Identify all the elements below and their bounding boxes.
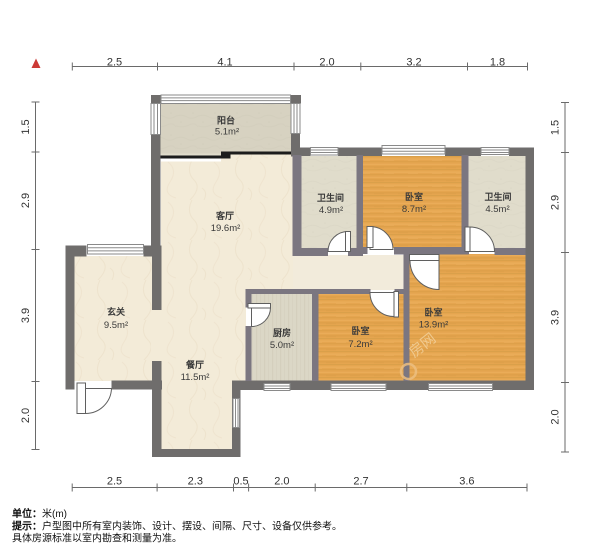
svg-text:卫生间: 卫生间 bbox=[317, 192, 344, 203]
svg-text:3.9: 3.9 bbox=[20, 308, 32, 323]
svg-text:厨房: 厨房 bbox=[273, 327, 291, 338]
svg-text:具体房源标准以室内勘查和测量为准。: 具体房源标准以室内勘查和测量为准。 bbox=[12, 532, 182, 545]
svg-text:卧室: 卧室 bbox=[351, 325, 369, 336]
svg-text:3.9: 3.9 bbox=[550, 310, 562, 325]
svg-text:5.0m²: 5.0m² bbox=[270, 340, 294, 351]
svg-text:4.5m²: 4.5m² bbox=[485, 204, 509, 215]
svg-text:19.6m²: 19.6m² bbox=[211, 223, 241, 234]
svg-text:1.5: 1.5 bbox=[20, 119, 32, 134]
svg-text:提示：户型图中所有室内装饰、设计、摆设、间隔、尺寸、设备仅供: 提示：户型图中所有室内装饰、设计、摆设、间隔、尺寸、设备仅供参考。 bbox=[12, 520, 342, 533]
svg-text:2.3: 2.3 bbox=[188, 476, 203, 488]
svg-text:卧室: 卧室 bbox=[405, 191, 423, 202]
svg-text:2.0: 2.0 bbox=[550, 409, 562, 424]
svg-text:阳台: 阳台 bbox=[217, 115, 235, 126]
svg-text:2.5: 2.5 bbox=[107, 476, 122, 488]
svg-text:2.0: 2.0 bbox=[319, 57, 334, 69]
svg-text:客厅: 客厅 bbox=[215, 210, 234, 221]
svg-text:2.5: 2.5 bbox=[107, 57, 122, 69]
svg-text:0.5: 0.5 bbox=[233, 476, 248, 488]
svg-text:卫生间: 卫生间 bbox=[484, 191, 511, 202]
svg-text:2.9: 2.9 bbox=[550, 195, 562, 210]
svg-text:2.0: 2.0 bbox=[20, 408, 32, 423]
svg-text:1.5: 1.5 bbox=[550, 120, 562, 135]
svg-text:单位：米(m): 单位：米(m) bbox=[12, 507, 67, 520]
svg-text:3.2: 3.2 bbox=[406, 57, 421, 69]
svg-text:卧室: 卧室 bbox=[424, 307, 442, 318]
svg-text:11.5m²: 11.5m² bbox=[181, 372, 210, 383]
svg-text:3.6: 3.6 bbox=[459, 476, 474, 488]
svg-text:7.2m²: 7.2m² bbox=[348, 339, 372, 350]
svg-text:2.9: 2.9 bbox=[20, 193, 32, 208]
svg-text:餐厅: 餐厅 bbox=[185, 359, 204, 370]
svg-text:4.9m²: 4.9m² bbox=[319, 205, 343, 216]
svg-text:13.9m²: 13.9m² bbox=[419, 320, 449, 331]
svg-text:9.5m²: 9.5m² bbox=[104, 320, 128, 331]
svg-text:1.8: 1.8 bbox=[490, 57, 505, 69]
svg-text:2.7: 2.7 bbox=[353, 476, 368, 488]
svg-text:8.7m²: 8.7m² bbox=[402, 204, 426, 215]
svg-text:4.1: 4.1 bbox=[217, 57, 232, 69]
svg-text:2.0: 2.0 bbox=[274, 476, 289, 488]
svg-text:玄关: 玄关 bbox=[107, 306, 125, 317]
svg-text:5.1m²: 5.1m² bbox=[215, 127, 239, 138]
